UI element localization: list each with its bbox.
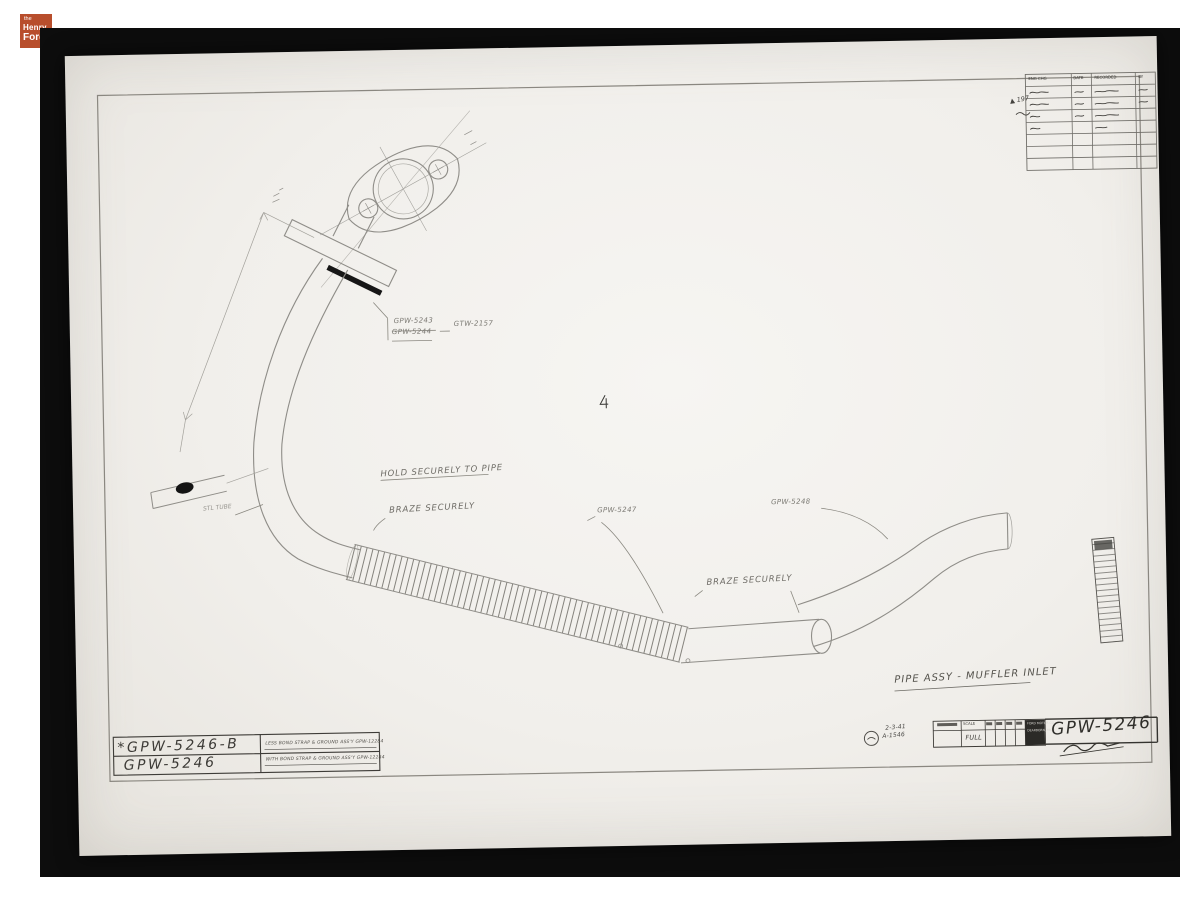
rev-header-recorded: RECORDED — [1094, 76, 1116, 80]
rev-header-chg: ENG CHG — [1028, 77, 1046, 81]
stray-mark — [600, 395, 608, 408]
callout-gpw-5247: GPW-5247 — [597, 507, 637, 515]
part-number-main: GPW-5246 — [124, 756, 217, 773]
scale-value: FULL — [965, 734, 982, 741]
callout-gpw-5243: GPW-5243 — [394, 317, 434, 325]
bond-strap-piece — [150, 468, 269, 508]
callout-gpw-5248: GPW-5248 — [771, 498, 811, 506]
scanned-drawing-page: the Henry Ford — [0, 0, 1200, 900]
scale-label: SCALE — [963, 723, 975, 727]
part-number-alt: *GPW-5246-B — [117, 737, 239, 755]
logo-the: the — [24, 17, 49, 23]
weld-band — [328, 266, 381, 294]
photo-black-backdrop: GPW-5243 GPW-5244 GTW-2157 HOLD SECURELY… — [40, 28, 1180, 877]
callout-gpw-5244: GPW-5244 — [392, 328, 432, 336]
drawing-canvas — [65, 36, 1171, 856]
blueprint-sheet: GPW-5243 GPW-5244 GTW-2157 HOLD SECURELY… — [65, 36, 1171, 856]
dimension-lines — [175, 188, 318, 452]
ruler-strip — [1092, 537, 1123, 643]
revision-table — [1015, 72, 1157, 171]
flex-corrugated-section — [344, 544, 688, 662]
flange-side-view — [284, 204, 397, 295]
inlet-elbow — [796, 513, 1014, 647]
pipe-bend — [250, 258, 360, 580]
rev-header-by: BY — [1138, 75, 1143, 79]
rev-header-date: DATE — [1073, 76, 1083, 80]
callout-gtw-2157: GTW-2157 — [454, 320, 494, 328]
